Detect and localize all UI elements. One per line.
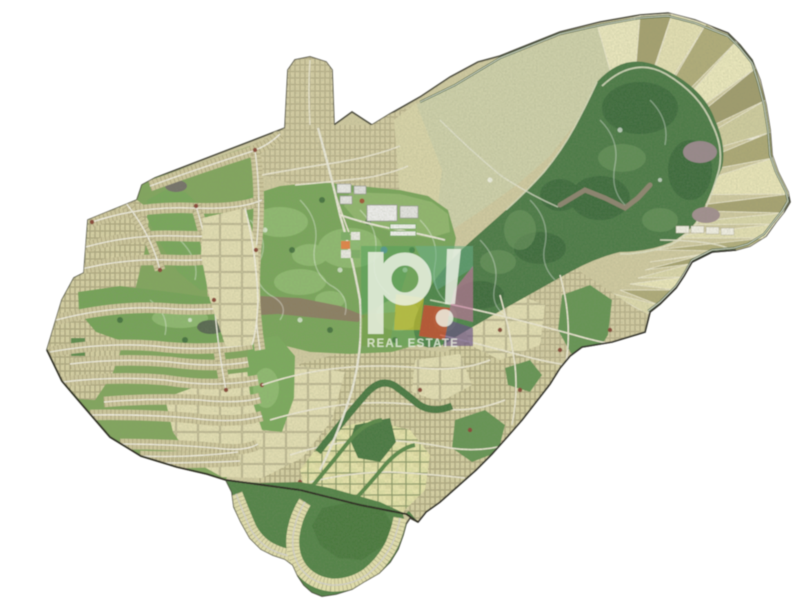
svg-text:REAL ESTATE: REAL ESTATE xyxy=(367,338,459,350)
